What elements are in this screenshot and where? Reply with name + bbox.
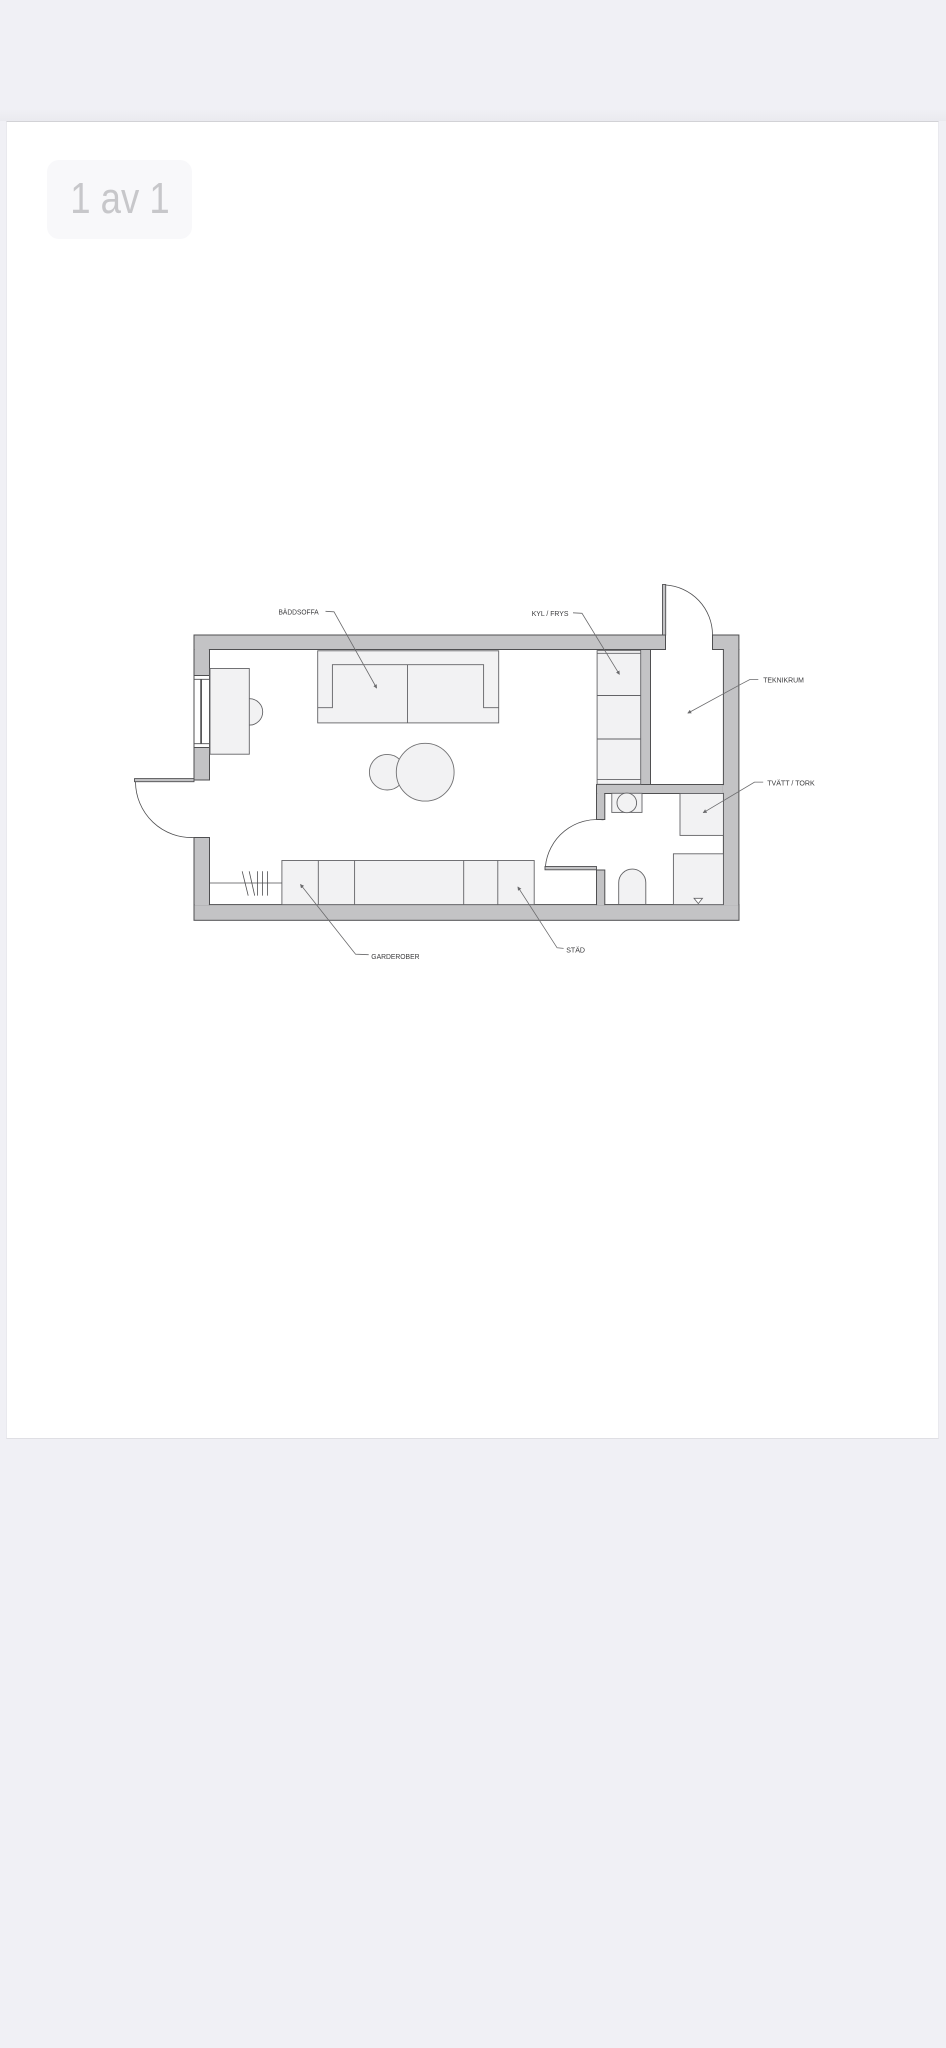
svg-text:GARDEROBER: GARDEROBER [371,952,420,961]
svg-text:BÄDDSOFFA: BÄDDSOFFA [279,607,320,616]
svg-text:KYL / FRYS: KYL / FRYS [532,609,569,618]
svg-text:TVÄTT / TORK: TVÄTT / TORK [767,778,815,787]
svg-text:TEKNIKRUM: TEKNIKRUM [763,675,804,684]
svg-text:STÄD: STÄD [566,945,585,954]
